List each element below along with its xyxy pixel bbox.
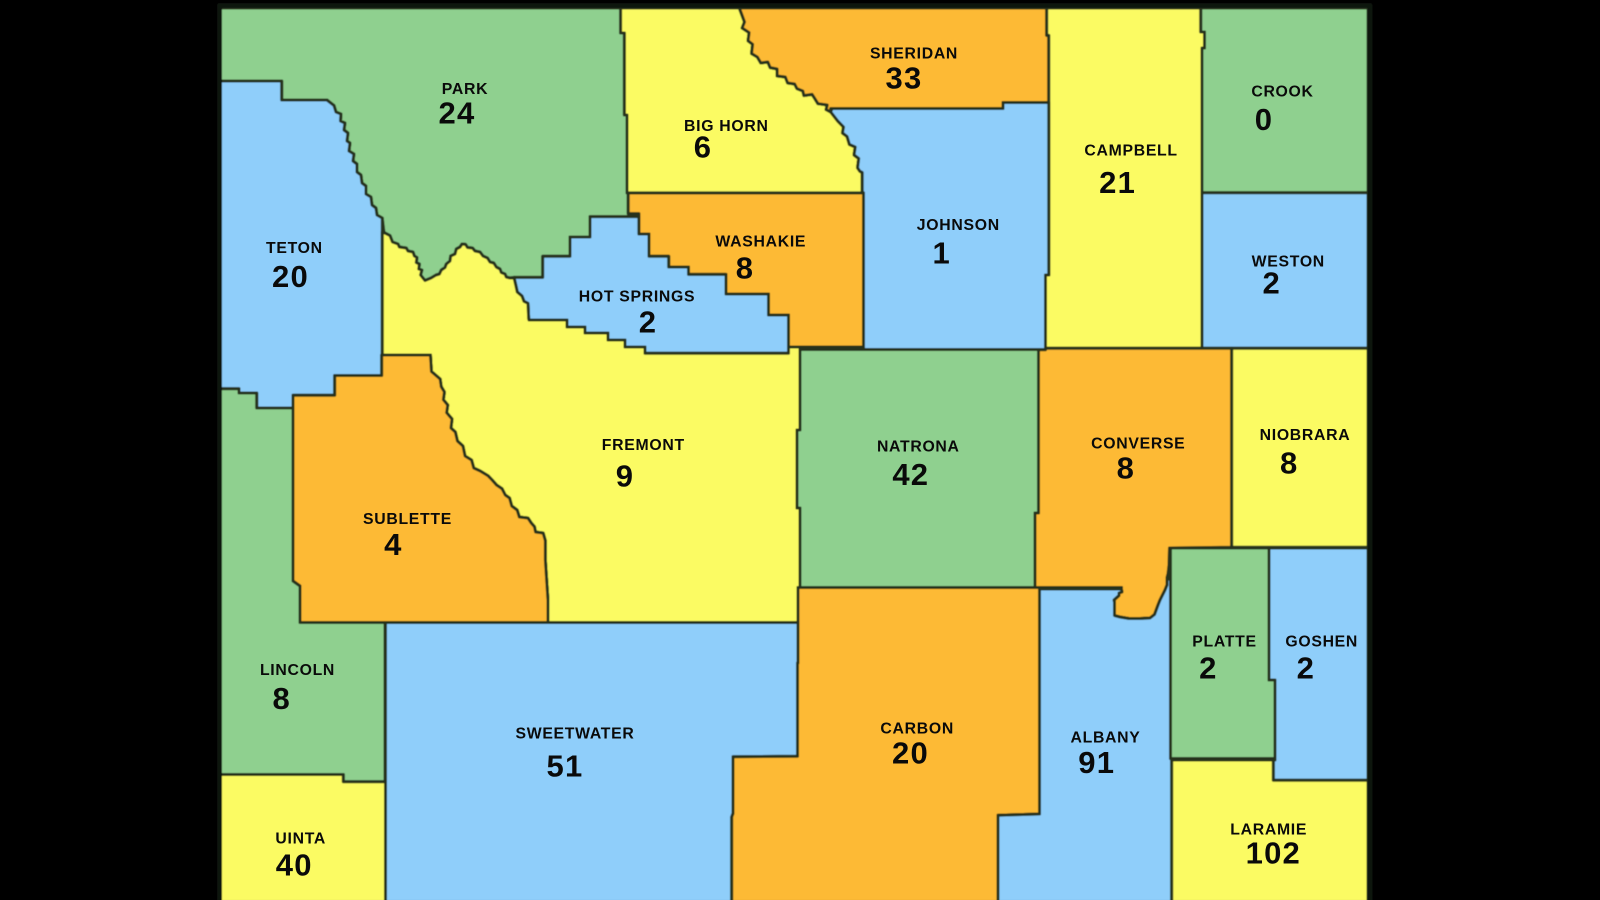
svg-text:20: 20	[892, 735, 929, 770]
svg-text:TETON: TETON	[266, 240, 323, 257]
svg-text:GOSHEN: GOSHEN	[1285, 634, 1358, 651]
svg-text:CAMPBELL: CAMPBELL	[1084, 143, 1177, 160]
svg-text:24: 24	[439, 95, 476, 130]
svg-text:21: 21	[1099, 165, 1136, 200]
svg-text:8: 8	[1280, 445, 1298, 480]
svg-text:1: 1	[932, 235, 950, 270]
svg-text:JOHNSON: JOHNSON	[917, 217, 1000, 234]
svg-text:LINCOLN: LINCOLN	[260, 662, 335, 679]
svg-text:91: 91	[1078, 745, 1115, 780]
svg-text:2: 2	[639, 305, 657, 340]
svg-text:8: 8	[1117, 450, 1135, 485]
svg-text:2: 2	[1199, 650, 1217, 685]
svg-text:WASHAKIE: WASHAKIE	[715, 234, 806, 251]
svg-text:40: 40	[276, 848, 313, 883]
svg-text:NATRONA: NATRONA	[877, 439, 960, 456]
svg-text:2: 2	[1297, 650, 1315, 685]
svg-text:0: 0	[1255, 102, 1273, 137]
svg-text:102: 102	[1246, 836, 1301, 871]
svg-text:CONVERSE: CONVERSE	[1091, 435, 1185, 452]
svg-text:HOT SPRINGS: HOT SPRINGS	[579, 289, 696, 306]
svg-text:UINTA: UINTA	[275, 830, 326, 847]
svg-text:2: 2	[1262, 265, 1280, 300]
svg-text:6: 6	[694, 129, 712, 164]
svg-text:ALBANY: ALBANY	[1070, 730, 1140, 747]
svg-text:NIOBRARA: NIOBRARA	[1260, 427, 1351, 444]
svg-text:SUBLETTE: SUBLETTE	[363, 511, 452, 528]
svg-text:33: 33	[886, 60, 923, 95]
svg-text:SWEETWATER: SWEETWATER	[515, 725, 634, 742]
svg-text:CROOK: CROOK	[1251, 84, 1313, 101]
svg-text:9: 9	[616, 459, 634, 494]
svg-text:8: 8	[736, 250, 754, 285]
svg-text:4: 4	[384, 527, 402, 562]
svg-text:51: 51	[547, 749, 584, 784]
svg-text:PLATTE: PLATTE	[1192, 634, 1256, 651]
svg-text:42: 42	[892, 457, 929, 492]
svg-text:8: 8	[272, 681, 290, 716]
svg-text:20: 20	[272, 259, 309, 294]
svg-text:FREMONT: FREMONT	[602, 437, 685, 454]
